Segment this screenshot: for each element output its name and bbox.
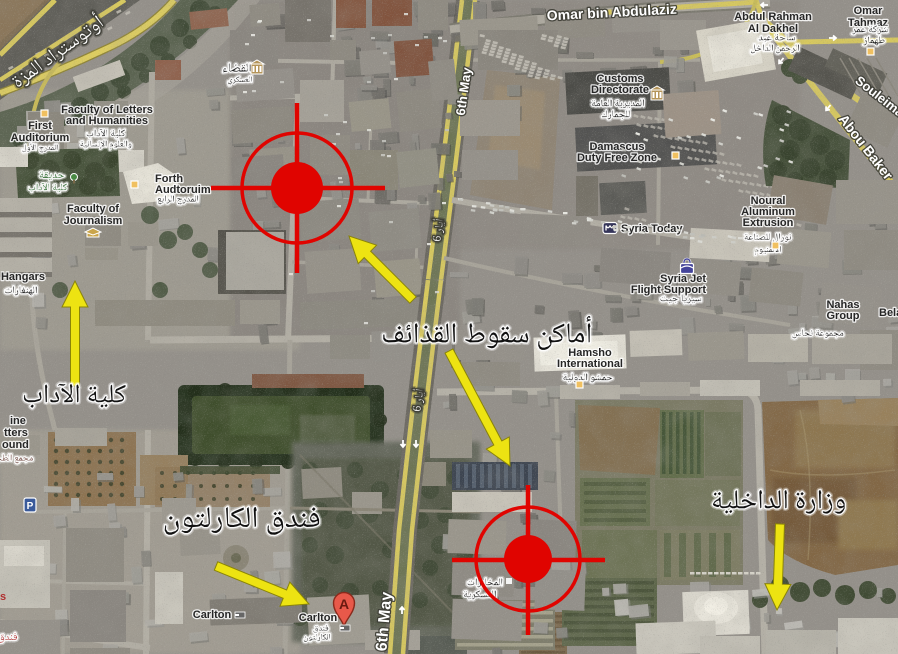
svg-text:Auditorium: Auditorium (11, 132, 70, 144)
svg-text:First: First (28, 120, 52, 132)
svg-text:Extrusion: Extrusion (743, 217, 794, 229)
svg-text:Journalism: Journalism (64, 215, 123, 227)
svg-text:Carlton: Carlton (193, 609, 232, 621)
svg-text:tters: tters (4, 427, 28, 439)
svg-text:P: P (27, 501, 34, 512)
svg-text:Syria Today: Syria Today (621, 223, 683, 235)
svg-text:Group: Group (827, 310, 860, 322)
svg-text:ine: ine (10, 415, 26, 427)
svg-text:Bela: Bela (879, 307, 898, 319)
svg-text:Faculty of: Faculty of (67, 203, 119, 215)
svg-text:Directorate: Directorate (591, 84, 649, 96)
svg-text:Omar: Omar (854, 5, 883, 17)
svg-text:Flight Support: Flight Support (631, 284, 706, 296)
svg-text:Hangars: Hangars (1, 271, 45, 283)
svg-text:International: International (557, 358, 623, 370)
svg-text:ound: ound (2, 439, 29, 451)
svg-text:Abdul Rahman: Abdul Rahman (734, 11, 812, 23)
svg-text:Duty Free Zone: Duty Free Zone (577, 152, 657, 164)
svg-text:A: A (339, 596, 349, 612)
svg-text:Carlton: Carlton (299, 612, 338, 624)
svg-text:Al Dakhel: Al Dakhel (748, 23, 798, 35)
svg-text:s: s (0, 591, 6, 603)
svg-text:and Humanities: and Humanities (66, 115, 148, 127)
